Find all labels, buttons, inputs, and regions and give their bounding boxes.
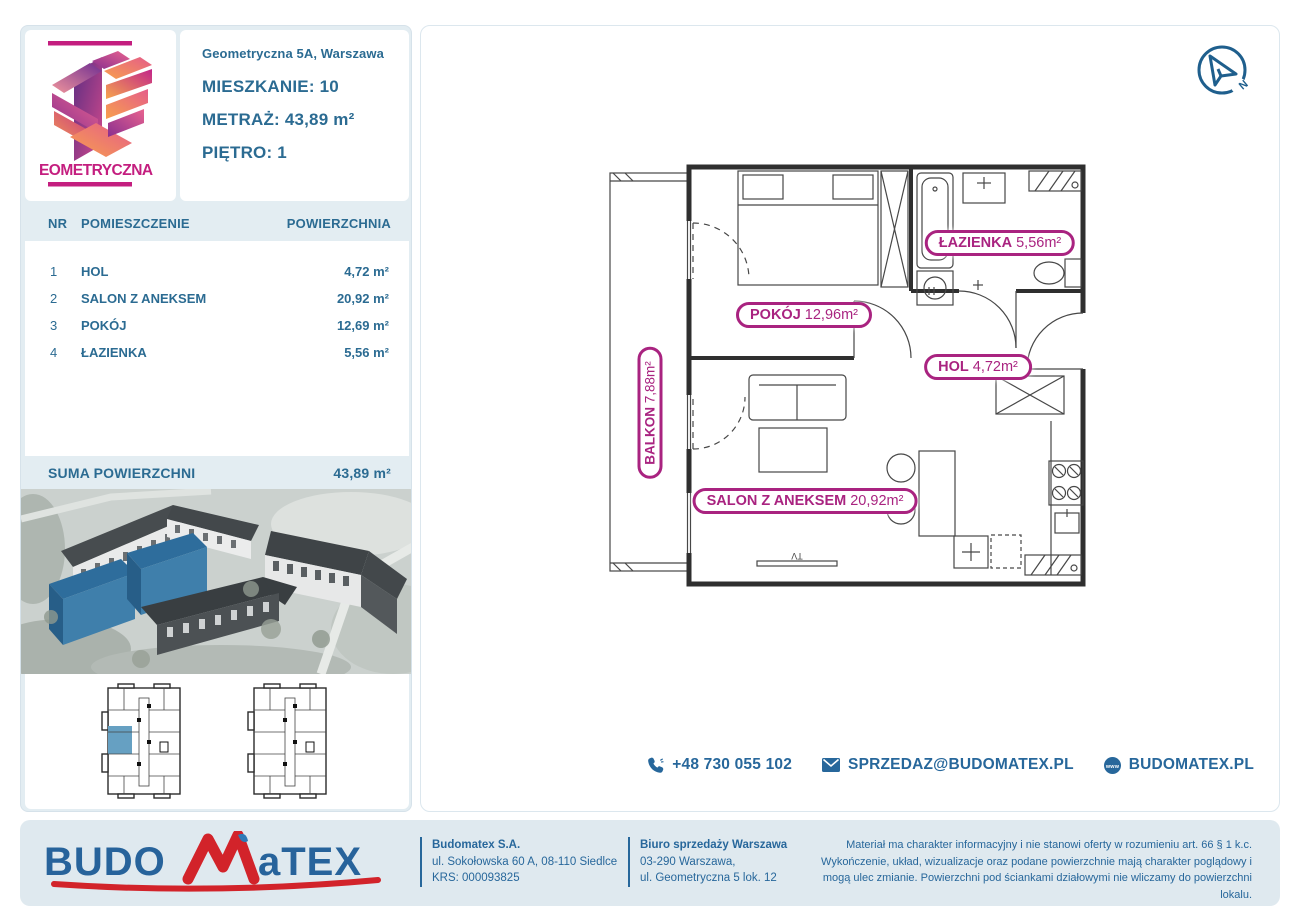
tv-marker: TV — [791, 551, 803, 561]
total-value: 43,89 m² — [333, 465, 412, 481]
logo-top-rule — [48, 41, 132, 46]
aerial-view-image — [21, 489, 412, 674]
room-label-name: BALKON — [643, 407, 658, 465]
col-nr: NR — [21, 216, 81, 231]
phone-link[interactable]: +48 730 055 102 — [647, 756, 792, 774]
building-key-plans — [25, 674, 409, 809]
room-label-salon: SALON Z ANEKSEM 20,92m² — [693, 488, 918, 514]
contact-row: +48 730 055 102 SPRZEDAZ@BUDOMATEX.PL ww… — [647, 756, 1254, 774]
brand-left: BUDO — [44, 840, 166, 884]
geometryczna-logo: GEOMETRYCZNA — [40, 41, 162, 191]
area-value: 43,89 m² — [285, 110, 355, 129]
envelope-icon — [822, 758, 840, 772]
apartment-number-line: MIESZKANIE: 10 — [202, 77, 409, 97]
row-area: 4,72 m² — [279, 264, 409, 279]
total-area-line: METRAŻ: 43,89 m² — [202, 110, 409, 130]
floor-label: PIĘTRO: — [202, 143, 272, 162]
room-label-name: HOL — [938, 359, 969, 375]
row-name: POKÓJ — [81, 318, 279, 333]
table-row: 2 SALON Z ANEKSEM 20,92 m² — [25, 285, 409, 312]
apartment-label: MIESZKANIE: — [202, 77, 315, 96]
row-nr: 1 — [25, 264, 81, 279]
floor-line: PIĘTRO: 1 — [202, 143, 409, 163]
apartment-value: 10 — [320, 77, 339, 96]
key-plan-highlighted — [94, 682, 194, 802]
svg-text:www: www — [1105, 763, 1120, 769]
website-address: BUDOMATEX.PL — [1129, 756, 1254, 774]
rooms-table-header: NR POMIESZCZENIE POWIERZCHNIA — [21, 206, 412, 241]
row-nr: 2 — [25, 291, 81, 306]
rooms-table-body: 1 HOL 4,72 m² 2 SALON Z ANEKSEM 20,92 m²… — [25, 241, 409, 456]
office-name: Biuro sprzedaży Warszawa — [640, 837, 787, 854]
north-compass-icon: N — [1191, 40, 1255, 104]
floor-plan-panel: N — [420, 25, 1280, 812]
phone-icon — [647, 757, 664, 774]
table-row: 4 ŁAZIENKA 5,56 m² — [25, 339, 409, 366]
room-label-lazienka: ŁAZIENKA 5,56m² — [925, 230, 1075, 256]
apartment-info-panel: Geometryczna 5A, Warszawa MIESZKANIE: 10… — [180, 30, 409, 201]
room-label-area: 12,96m² — [805, 307, 858, 323]
www-globe-icon: www — [1104, 757, 1121, 774]
logo-wordmark: GEOMETRYCZNA — [40, 162, 153, 179]
room-label-area: 20,92m² — [850, 493, 903, 509]
table-row: 3 POKÓJ 12,69 m² — [25, 312, 409, 339]
left-info-column: GEOMETRYCZNA Geometryczna 5A, Warszawa M… — [20, 25, 412, 812]
row-nr: 3 — [25, 318, 81, 333]
website-link[interactable]: www BUDOMATEX.PL — [1104, 756, 1254, 774]
project-address: Geometryczna 5A, Warszawa — [202, 46, 409, 61]
room-label-name: POKÓJ — [750, 307, 801, 323]
company-address-block: Budomatex S.A. ul. Sokołowska 60 A, 08-1… — [420, 837, 617, 887]
company-krs: KRS: 000093825 — [432, 870, 617, 887]
table-row: 1 HOL 4,72 m² — [25, 258, 409, 285]
email-link[interactable]: SPRZEDAZ@BUDOMATEX.PL — [822, 756, 1074, 774]
room-label-name: ŁAZIENKA — [939, 235, 1012, 251]
room-label-name: SALON Z ANEKSEM — [707, 493, 847, 509]
brand-right: aTEX — [258, 840, 362, 884]
row-area: 5,56 m² — [279, 345, 409, 360]
row-name: HOL — [81, 264, 279, 279]
footer-bar: BUDO aTEX Budomatex S.A. ul. Sokołowska … — [20, 820, 1280, 906]
highlighted-unit — [108, 726, 132, 754]
room-label-area: 4,72m² — [973, 359, 1018, 375]
room-label-balkon: BALKON 7,88m² — [638, 347, 663, 479]
office-line1: 03-290 Warszawa, — [640, 854, 787, 871]
col-room: POMIESZCZENIE — [81, 216, 283, 231]
floor-plan-drawing: TV ŁAZIENKA 5,56m² POKÓJ 12,96m² HOL 4,7… — [601, 163, 1091, 588]
row-area: 12,69 m² — [279, 318, 409, 333]
company-street: ul. Sokołowska 60 A, 08-110 Siedlce — [432, 854, 617, 871]
row-nr: 4 — [25, 345, 81, 360]
budomatex-logo: BUDO aTEX — [42, 831, 387, 893]
logo-hexagon — [52, 51, 152, 161]
room-label-area: 5,56m² — [1016, 235, 1061, 251]
row-name: ŁAZIENKA — [81, 345, 279, 360]
col-area: POWIERZCHNIA — [283, 216, 412, 231]
company-name: Budomatex S.A. — [432, 837, 617, 854]
email-address: SPRZEDAZ@BUDOMATEX.PL — [848, 756, 1074, 774]
floor-value: 1 — [277, 143, 287, 162]
room-label-area: 7,88m² — [643, 361, 658, 403]
sales-office-block: Biuro sprzedaży Warszawa 03-290 Warszawa… — [628, 837, 787, 887]
phone-number: +48 730 055 102 — [672, 756, 792, 774]
total-label: SUMA POWIERZCHNI — [21, 465, 333, 481]
office-line2: ul. Geometryczna 5 lok. 12 — [640, 870, 787, 887]
total-area-row: SUMA POWIERZCHNI 43,89 m² — [21, 456, 412, 489]
key-plan-plain — [240, 682, 340, 802]
room-label-hol: HOL 4,72m² — [924, 354, 1032, 380]
room-label-pokoj: POKÓJ 12,96m² — [736, 302, 872, 328]
area-label: METRAŻ: — [202, 110, 280, 129]
developer-logo-panel: GEOMETRYCZNA — [25, 30, 176, 201]
row-area: 20,92 m² — [279, 291, 409, 306]
logo-bottom-rule — [48, 182, 132, 187]
legal-disclaimer: Materiał ma charakter informacyjny i nie… — [800, 837, 1252, 903]
row-name: SALON Z ANEKSEM — [81, 291, 279, 306]
